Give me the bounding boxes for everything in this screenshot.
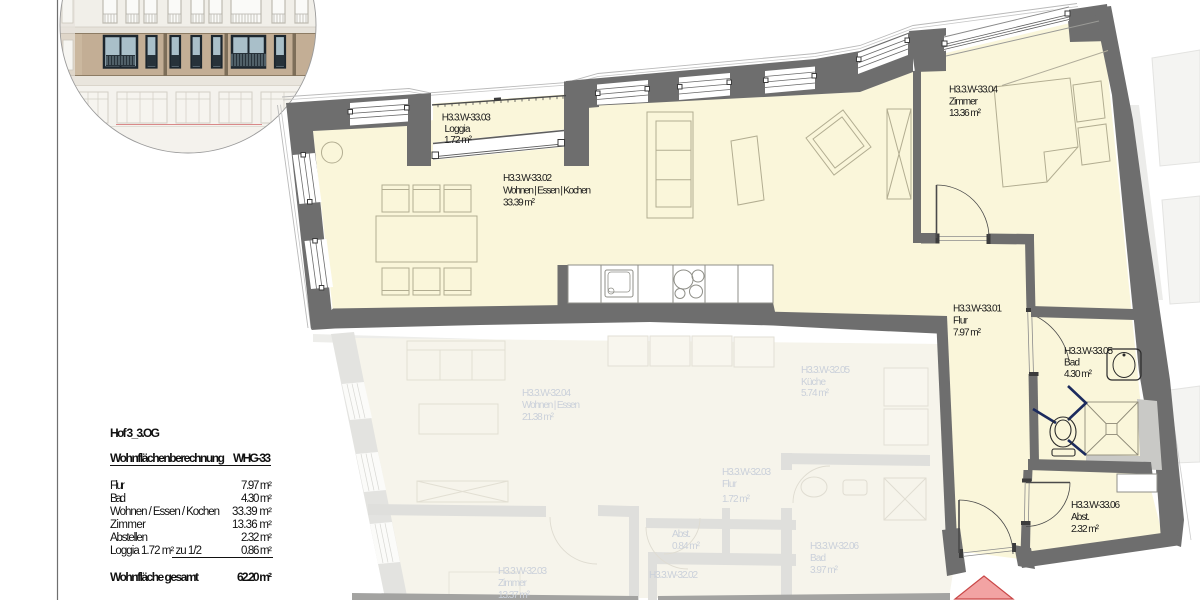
svg-text:33.39 m²: 33.39 m² [503, 198, 536, 209]
svg-text:Wohnen | Essen: Wohnen | Essen [522, 400, 580, 411]
svg-text:0.84 m²: 0.84 m² [672, 541, 701, 552]
svg-text:5.74 m²: 5.74 m² [801, 388, 830, 399]
svg-text:Flur: Flur [953, 316, 969, 327]
svg-text:7.97 m²: 7.97 m² [953, 328, 982, 339]
svg-text:2.32 m²: 2.32 m² [241, 532, 272, 544]
svg-text:3.97 m²: 3.97 m² [810, 565, 839, 576]
svg-text:62.20 m²: 62.20 m² [237, 570, 272, 584]
svg-text:1.72 m²: 1.72 m² [722, 494, 751, 505]
svg-text:H3.3.W-33.04: H3.3.W-33.04 [949, 85, 998, 96]
svg-text:H3.3.W-32.02: H3.3.W-32.02 [649, 570, 698, 581]
svg-text:H3.3.W-32.03: H3.3.W-32.03 [722, 467, 771, 478]
svg-text:0.86 m²: 0.86 m² [241, 545, 272, 557]
svg-text:33.39 m²: 33.39 m² [232, 506, 272, 518]
svg-text:1.72 m²: 1.72 m² [444, 135, 473, 146]
svg-text:H3.3.W-32.03: H3.3.W-32.03 [498, 566, 547, 577]
svg-text:21.38 m²: 21.38 m² [522, 412, 555, 423]
svg-text:13.36 m²: 13.36 m² [949, 108, 982, 119]
svg-text:Abstellen: Abstellen [110, 532, 148, 544]
svg-text:Flur: Flur [110, 480, 125, 492]
svg-text:Bad: Bad [1064, 358, 1080, 369]
svg-text:Loggia 1.72 m² zu 1/2: Loggia 1.72 m² zu 1/2 [110, 545, 202, 557]
svg-text:Bad: Bad [810, 553, 826, 564]
svg-text:WHG-33: WHG-33 [233, 451, 271, 465]
svg-text:Abst.: Abst. [672, 529, 691, 540]
svg-text:7.97 m²: 7.97 m² [241, 480, 272, 492]
svg-text:2.32 m²: 2.32 m² [1071, 524, 1100, 535]
svg-text:Wohnen | Essen | Kochen: Wohnen | Essen | Kochen [503, 186, 591, 197]
svg-text:H3.3.W-32.06: H3.3.W-32.06 [810, 541, 859, 552]
svg-text:Hof 3_3.OG: Hof 3_3.OG [110, 426, 160, 440]
svg-text:Küche: Küche [801, 377, 826, 388]
svg-text:Wohnfläche gesamt: Wohnfläche gesamt [110, 570, 199, 584]
svg-text:Flur: Flur [722, 479, 738, 490]
svg-text:Wohnflächenberechnung: Wohnflächenberechnung [110, 451, 225, 465]
svg-text:H3.3.W-33.02: H3.3.W-33.02 [503, 173, 552, 184]
svg-text:H3.3.W-33.05: H3.3.W-33.05 [1064, 346, 1113, 357]
svg-text:H3.3.W-32.04: H3.3.W-32.04 [522, 388, 571, 399]
svg-text:Zimmer: Zimmer [498, 578, 528, 589]
svg-text:Zimmer: Zimmer [110, 519, 146, 531]
svg-text:H3.3.W-33.03: H3.3.W-33.03 [442, 113, 491, 124]
svg-text:H3.3.W-33.06: H3.3.W-33.06 [1071, 500, 1120, 511]
svg-text:H3.3.W-33.01: H3.3.W-33.01 [953, 304, 1002, 315]
svg-text:13.37 m²: 13.37 m² [498, 590, 531, 600]
svg-text:13.36 m²: 13.36 m² [232, 519, 272, 531]
svg-text:Abst.: Abst. [1071, 512, 1090, 523]
svg-text:Wohnen / Essen / Kochen: Wohnen / Essen / Kochen [110, 506, 220, 518]
svg-text:Loggia: Loggia [445, 124, 471, 135]
svg-text:Zimmer: Zimmer [949, 97, 979, 108]
svg-text:Bad: Bad [110, 493, 126, 505]
svg-text:4.30 m²: 4.30 m² [1064, 369, 1093, 380]
svg-text:4.30 m²: 4.30 m² [241, 493, 272, 505]
svg-text:H3.3.W-32.05: H3.3.W-32.05 [801, 365, 850, 376]
